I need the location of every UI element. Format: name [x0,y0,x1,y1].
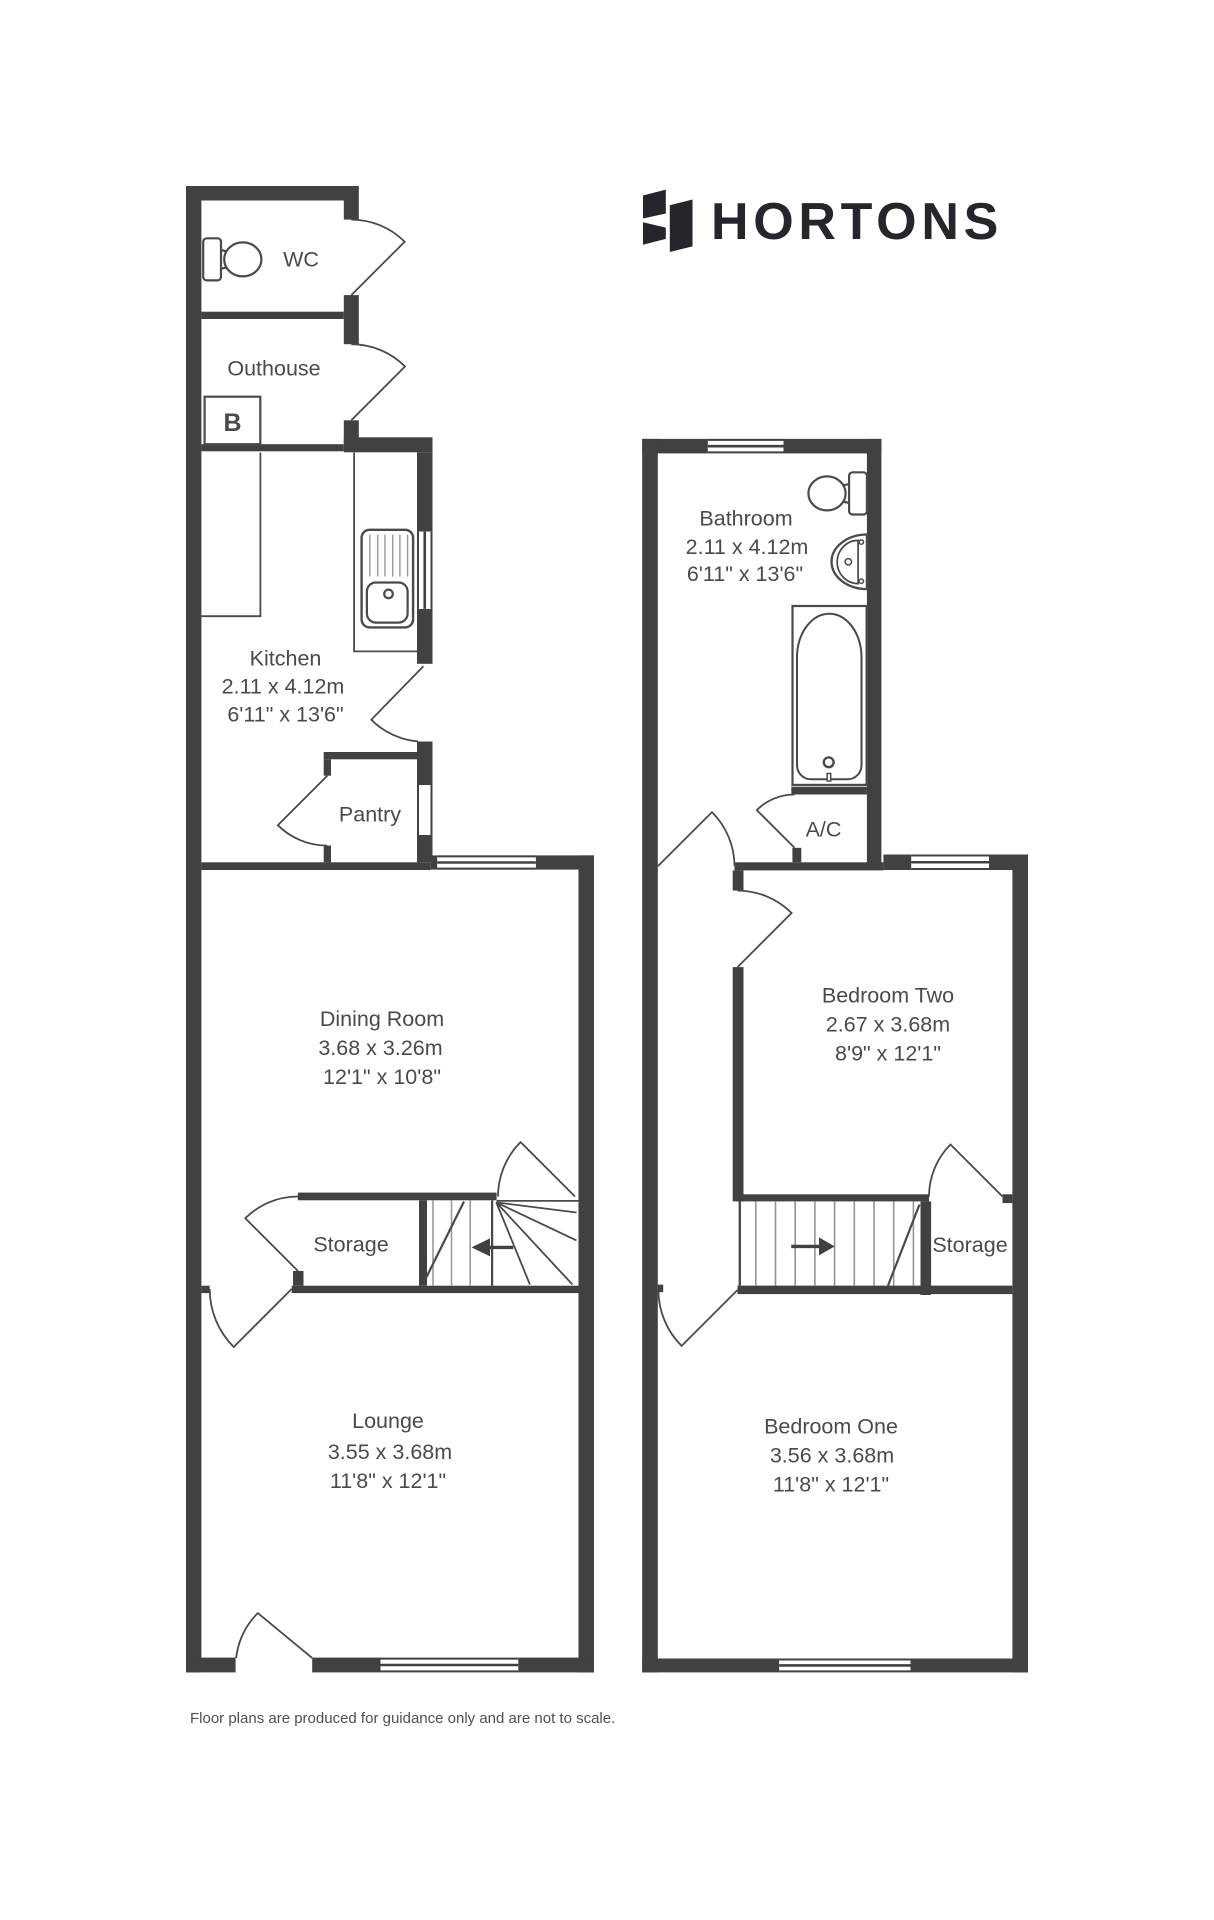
svg-text:Outhouse: Outhouse [227,357,320,381]
svg-text:2.67 x 3.68m: 2.67 x 3.68m [826,1013,950,1037]
svg-text:Lounge: Lounge [352,1409,424,1433]
svg-text:Kitchen: Kitchen [250,647,322,671]
svg-text:Pantry: Pantry [339,803,401,827]
svg-text:12'1" x 10'8": 12'1" x 10'8" [323,1065,441,1089]
svg-text:6'11" x 13'6": 6'11" x 13'6" [687,562,803,586]
svg-text:11'8" x 12'1": 11'8" x 12'1" [330,1469,446,1493]
svg-text:Storage: Storage [313,1233,388,1257]
svg-text:11'8" x 12'1": 11'8" x 12'1" [773,1472,889,1496]
svg-text:Bedroom Two: Bedroom Two [822,984,954,1008]
svg-text:Floor plans are produced for g: Floor plans are produced for guidance on… [190,1710,615,1727]
svg-text:6'11" x 13'6": 6'11" x 13'6" [227,703,343,727]
svg-text:3.56 x 3.68m: 3.56 x 3.68m [770,1443,894,1467]
svg-text:Bathroom: Bathroom [699,507,792,531]
svg-text:Storage: Storage [932,1233,1007,1257]
svg-text:Bedroom One: Bedroom One [764,1414,898,1438]
svg-text:2.11 x 4.12m: 2.11 x 4.12m [222,675,345,699]
svg-text:3.55 x 3.68m: 3.55 x 3.68m [328,1440,452,1464]
svg-text:WC: WC [283,248,319,272]
svg-text:HORTONS: HORTONS [711,193,1003,251]
svg-text:B: B [223,409,241,437]
svg-text:8'9" x 12'1": 8'9" x 12'1" [835,1042,941,1066]
svg-text:2.11 x 4.12m: 2.11 x 4.12m [686,535,809,559]
svg-text:3.68 x 3.26m: 3.68 x 3.26m [318,1036,442,1060]
svg-text:Dining Room: Dining Room [320,1007,444,1031]
svg-text:A/C: A/C [806,818,842,842]
